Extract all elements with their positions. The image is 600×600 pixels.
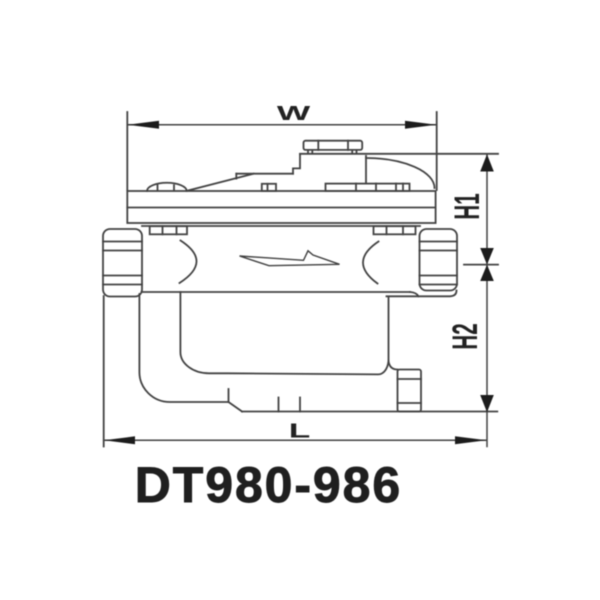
svg-text:W: W (277, 102, 311, 125)
svg-text:H2: H2 (446, 323, 485, 349)
svg-text:DT980-986: DT980-986 (135, 457, 402, 513)
svg-text:H1: H1 (448, 193, 487, 219)
svg-text:L: L (289, 420, 311, 443)
